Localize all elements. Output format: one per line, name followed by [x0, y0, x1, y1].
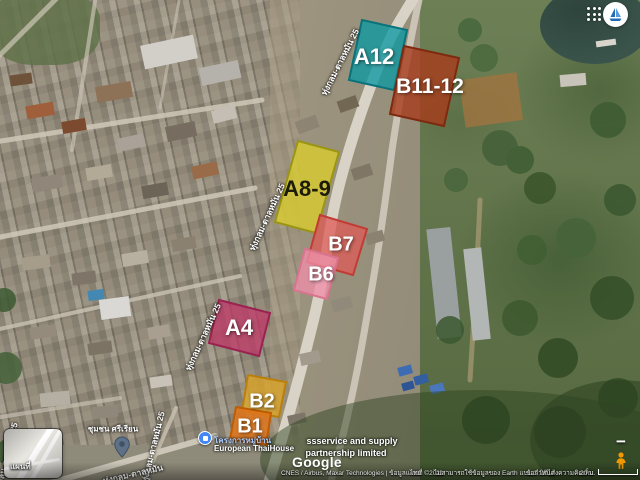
zoom-out-button[interactable]: −: [612, 434, 630, 452]
plot-label-b6: B6: [308, 264, 334, 287]
thaihouse-place-pin[interactable]: [198, 431, 212, 445]
village-label: ชุมชน ศรีเรียน: [88, 423, 138, 436]
map-decor: [0, 0, 640, 480]
thaihouse-label-line2[interactable]: European ThaiHouse: [214, 444, 294, 453]
plot-label-b2: B2: [249, 391, 275, 414]
business-label-line1[interactable]: ssservice and supply: [306, 436, 397, 446]
scale-text: 20 ม.: [580, 468, 595, 478]
map-pin-icon[interactable]: [114, 436, 130, 458]
plot-label-a12: A12: [354, 44, 394, 70]
plot-label-b7: B7: [328, 234, 354, 257]
plot-label-b11-12: B11-12: [396, 75, 464, 99]
satellite-map-viewport[interactable]: A12 B11-12 A8-9 B7 B6 A4 B2 B1 ทุ่งกลม-ต…: [0, 0, 640, 480]
plot-label-a8-9: A8-9: [283, 176, 331, 202]
avatar-logo-icon: [607, 6, 624, 23]
pin-glyph: [203, 436, 208, 441]
profile-avatar[interactable]: [603, 2, 628, 27]
region-label: ไทย: [410, 468, 421, 478]
scale-bar[interactable]: [598, 469, 638, 475]
plot-label-a4: A4: [225, 315, 253, 341]
apps-grid-icon[interactable]: [587, 7, 602, 22]
